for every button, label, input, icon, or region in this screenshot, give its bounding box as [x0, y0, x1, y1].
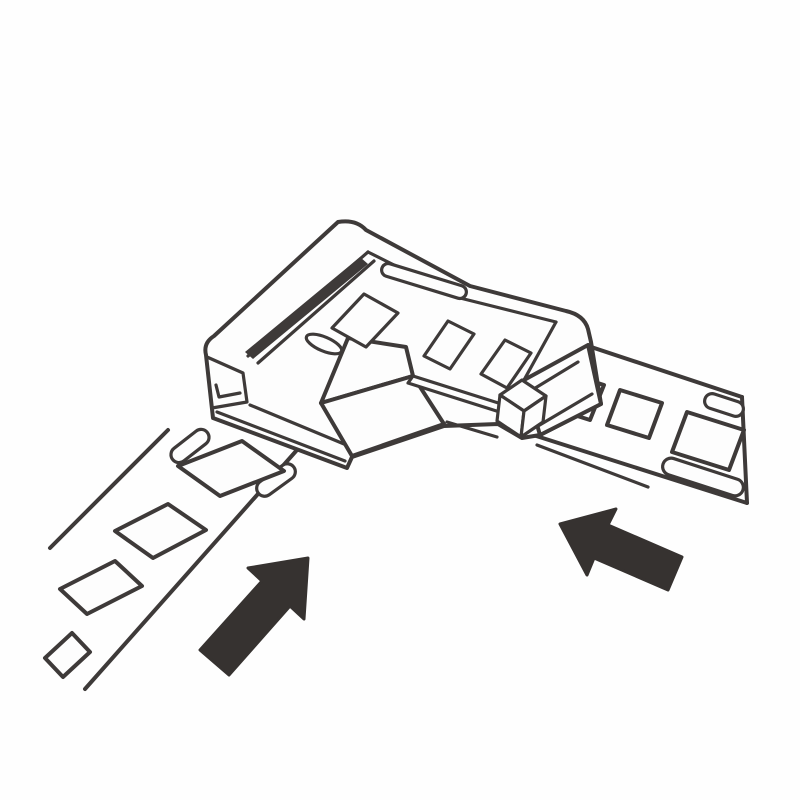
strip-pad	[607, 390, 662, 438]
strip-pad	[115, 504, 206, 558]
illustration-canvas	[0, 0, 800, 800]
connector-diagram	[0, 0, 800, 800]
insertion-arrow-left	[200, 558, 308, 675]
arrow-up-right-icon	[200, 558, 308, 675]
corner-connector	[205, 221, 601, 468]
insertion-arrow-right	[560, 509, 682, 590]
led-strip-left	[45, 424, 320, 689]
strip-pad	[45, 633, 90, 677]
strip-pad	[60, 561, 142, 614]
arrow-left-icon	[560, 509, 682, 590]
